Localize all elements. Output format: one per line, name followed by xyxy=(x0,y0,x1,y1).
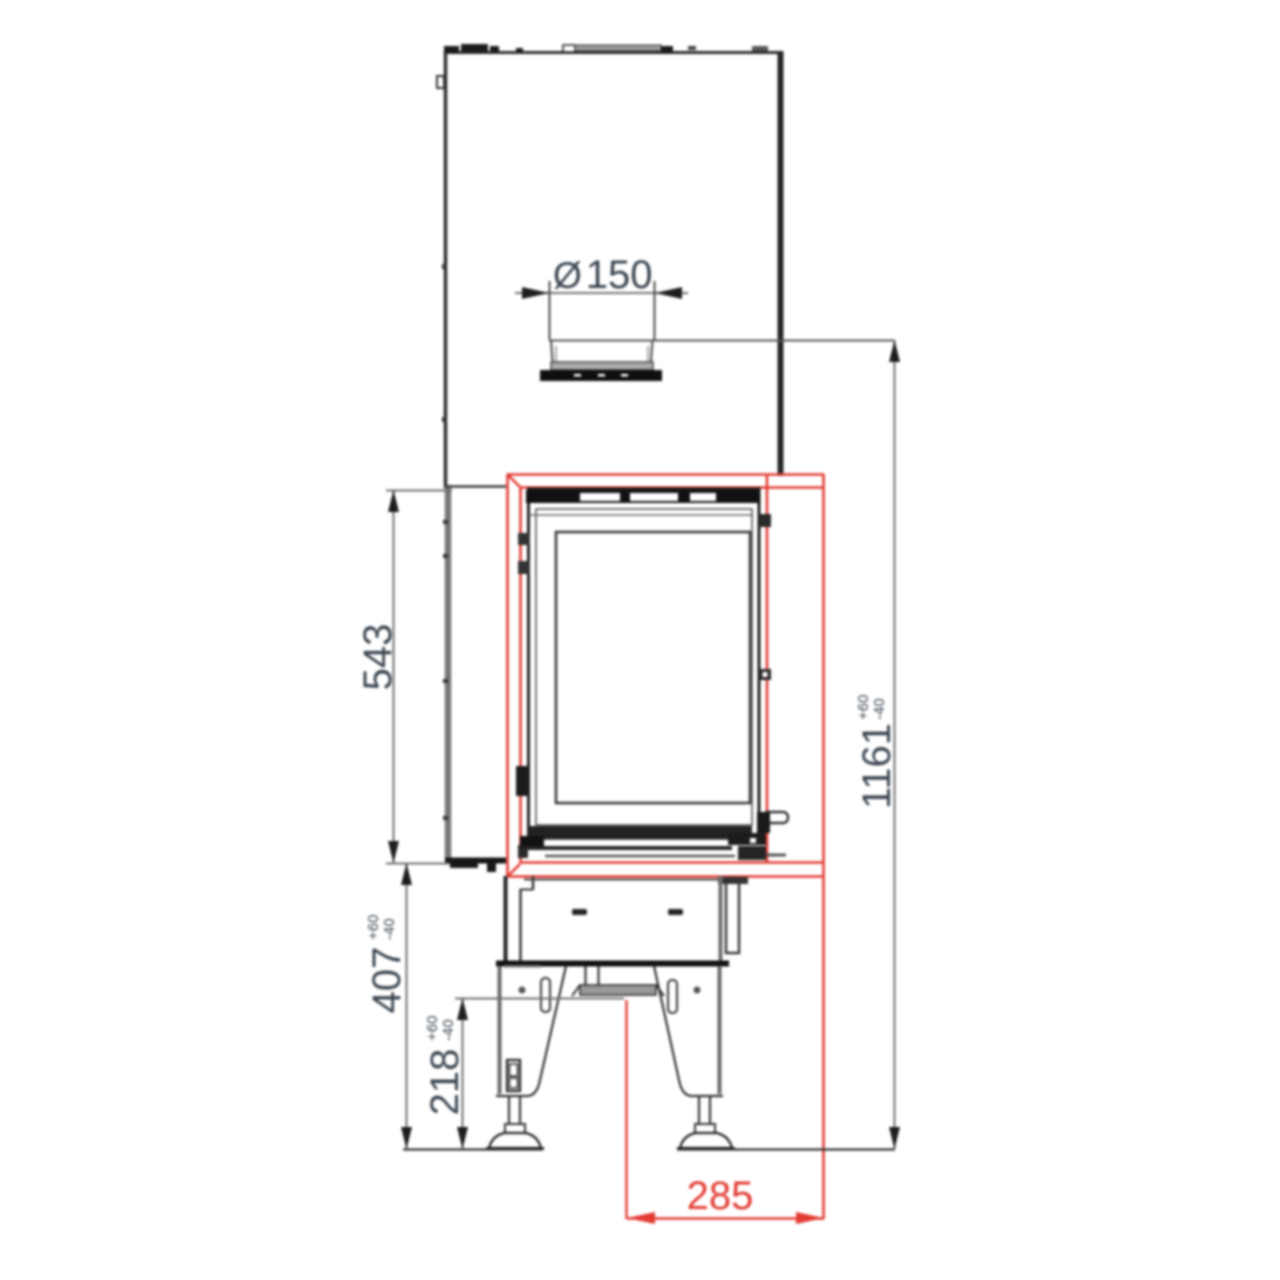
svg-text:543: 543 xyxy=(356,624,400,691)
svg-text:218: 218 xyxy=(423,1049,467,1116)
svg-text:-40: -40 xyxy=(381,918,398,940)
svg-text:-40: -40 xyxy=(440,1019,457,1041)
svg-text:285: 285 xyxy=(687,1174,754,1218)
svg-text:-40: -40 xyxy=(871,698,888,720)
svg-text:407: 407 xyxy=(365,947,409,1014)
svg-text:+60: +60 xyxy=(365,915,382,940)
svg-text:+60: +60 xyxy=(424,1016,441,1041)
svg-text:1161: 1161 xyxy=(855,723,899,809)
svg-text:+60: +60 xyxy=(855,695,872,720)
svg-text:Ø150: Ø150 xyxy=(553,253,653,297)
